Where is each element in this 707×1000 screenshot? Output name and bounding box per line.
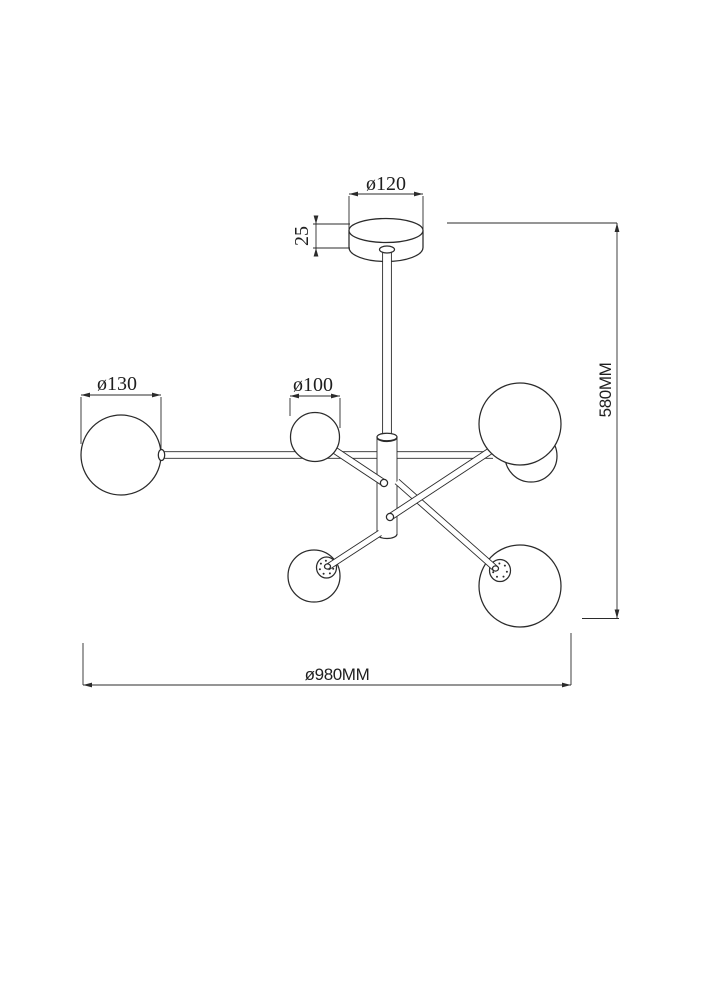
globe-upper-right-pair [479, 383, 561, 482]
arm-to-bottom-left [325, 531, 382, 571]
overall-height-label: 580MM [596, 363, 615, 418]
globe-bottom-right-shade [479, 545, 561, 627]
globe-left [81, 415, 165, 495]
canopy-height-label: 25 [291, 226, 313, 246]
globe-small-upper [291, 413, 340, 462]
globe-left-shade [81, 415, 161, 495]
chandelier-dimension-drawing: ø120 25 [0, 0, 707, 1000]
hub-top-cap [377, 433, 397, 441]
globe-bottom-left [288, 531, 382, 603]
overall-width-label: ø980MM [305, 665, 370, 684]
canopy-top-ellipse [349, 219, 423, 243]
small-globe-diameter-label: ø100 [293, 374, 333, 396]
dimension-canopy-height: 25 [291, 216, 350, 257]
dimension-drawing-page: ø120 25 [0, 0, 707, 1000]
stem-collar [380, 246, 395, 253]
stem-rod [380, 246, 395, 437]
arm-end-cap [386, 513, 393, 520]
large-globe-diameter-label: ø130 [97, 373, 137, 395]
arm-to-bottom-right [395, 479, 499, 571]
socket-left [158, 450, 164, 461]
arm-end-cap [380, 479, 387, 486]
globe-upper-right-front [479, 383, 561, 465]
dimension-overall-width: ø980MM [83, 633, 571, 687]
canopy-diameter-label: ø120 [366, 173, 406, 195]
